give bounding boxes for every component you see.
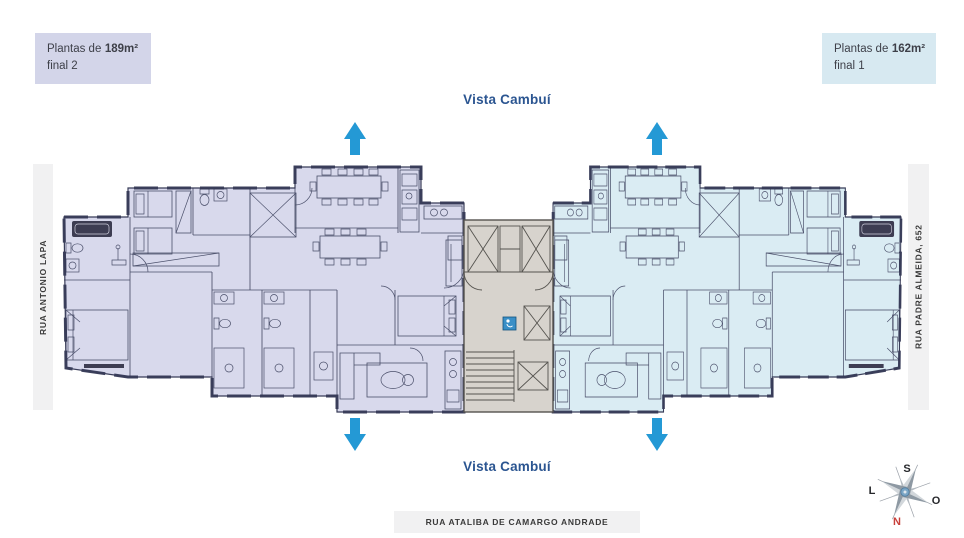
unit-label-162-area: 162m²	[892, 43, 925, 55]
compass-north-label: N	[893, 516, 901, 528]
street-label-right: RUA PADRE ALMEIDA, 652	[908, 164, 929, 410]
street-label-left: RUA ANTONIO LAPA	[33, 164, 53, 410]
apartment-162-plan	[553, 167, 901, 412]
unit-label-189-final: final 2	[47, 60, 78, 72]
unit-label-162: Plantas de162m² final 1	[822, 33, 936, 84]
view-arrow-down-left	[344, 418, 366, 451]
vista-cambui-bottom: Vista Cambuí	[407, 459, 607, 474]
floorplan-page: S L O N Plantas de189m² final 2 Plantas …	[0, 0, 964, 538]
unit-label-189-area: 189m²	[105, 43, 138, 55]
compass: S L O N	[865, 452, 945, 532]
compass-west-label: O	[932, 495, 941, 507]
building-core	[464, 220, 553, 412]
unit-label-162-prefix: Plantas de	[834, 43, 888, 55]
compass-south-label: S	[903, 463, 910, 475]
unit-label-189-prefix: Plantas de	[47, 43, 101, 55]
compass-east-label: L	[869, 485, 876, 497]
unit-label-189: Plantas de189m² final 2	[35, 33, 151, 84]
view-arrow-up-left	[344, 122, 366, 155]
unit-label-162-final: final 1	[834, 60, 865, 72]
street-label-bottom: RUA ATALIBA DE CAMARGO ANDRADE	[394, 511, 640, 533]
vista-cambui-top: Vista Cambuí	[407, 92, 607, 107]
elevator-icon	[503, 317, 516, 330]
apartment-189-plan	[64, 167, 464, 412]
view-arrow-up-right	[646, 122, 668, 155]
view-arrow-down-right	[646, 418, 668, 451]
